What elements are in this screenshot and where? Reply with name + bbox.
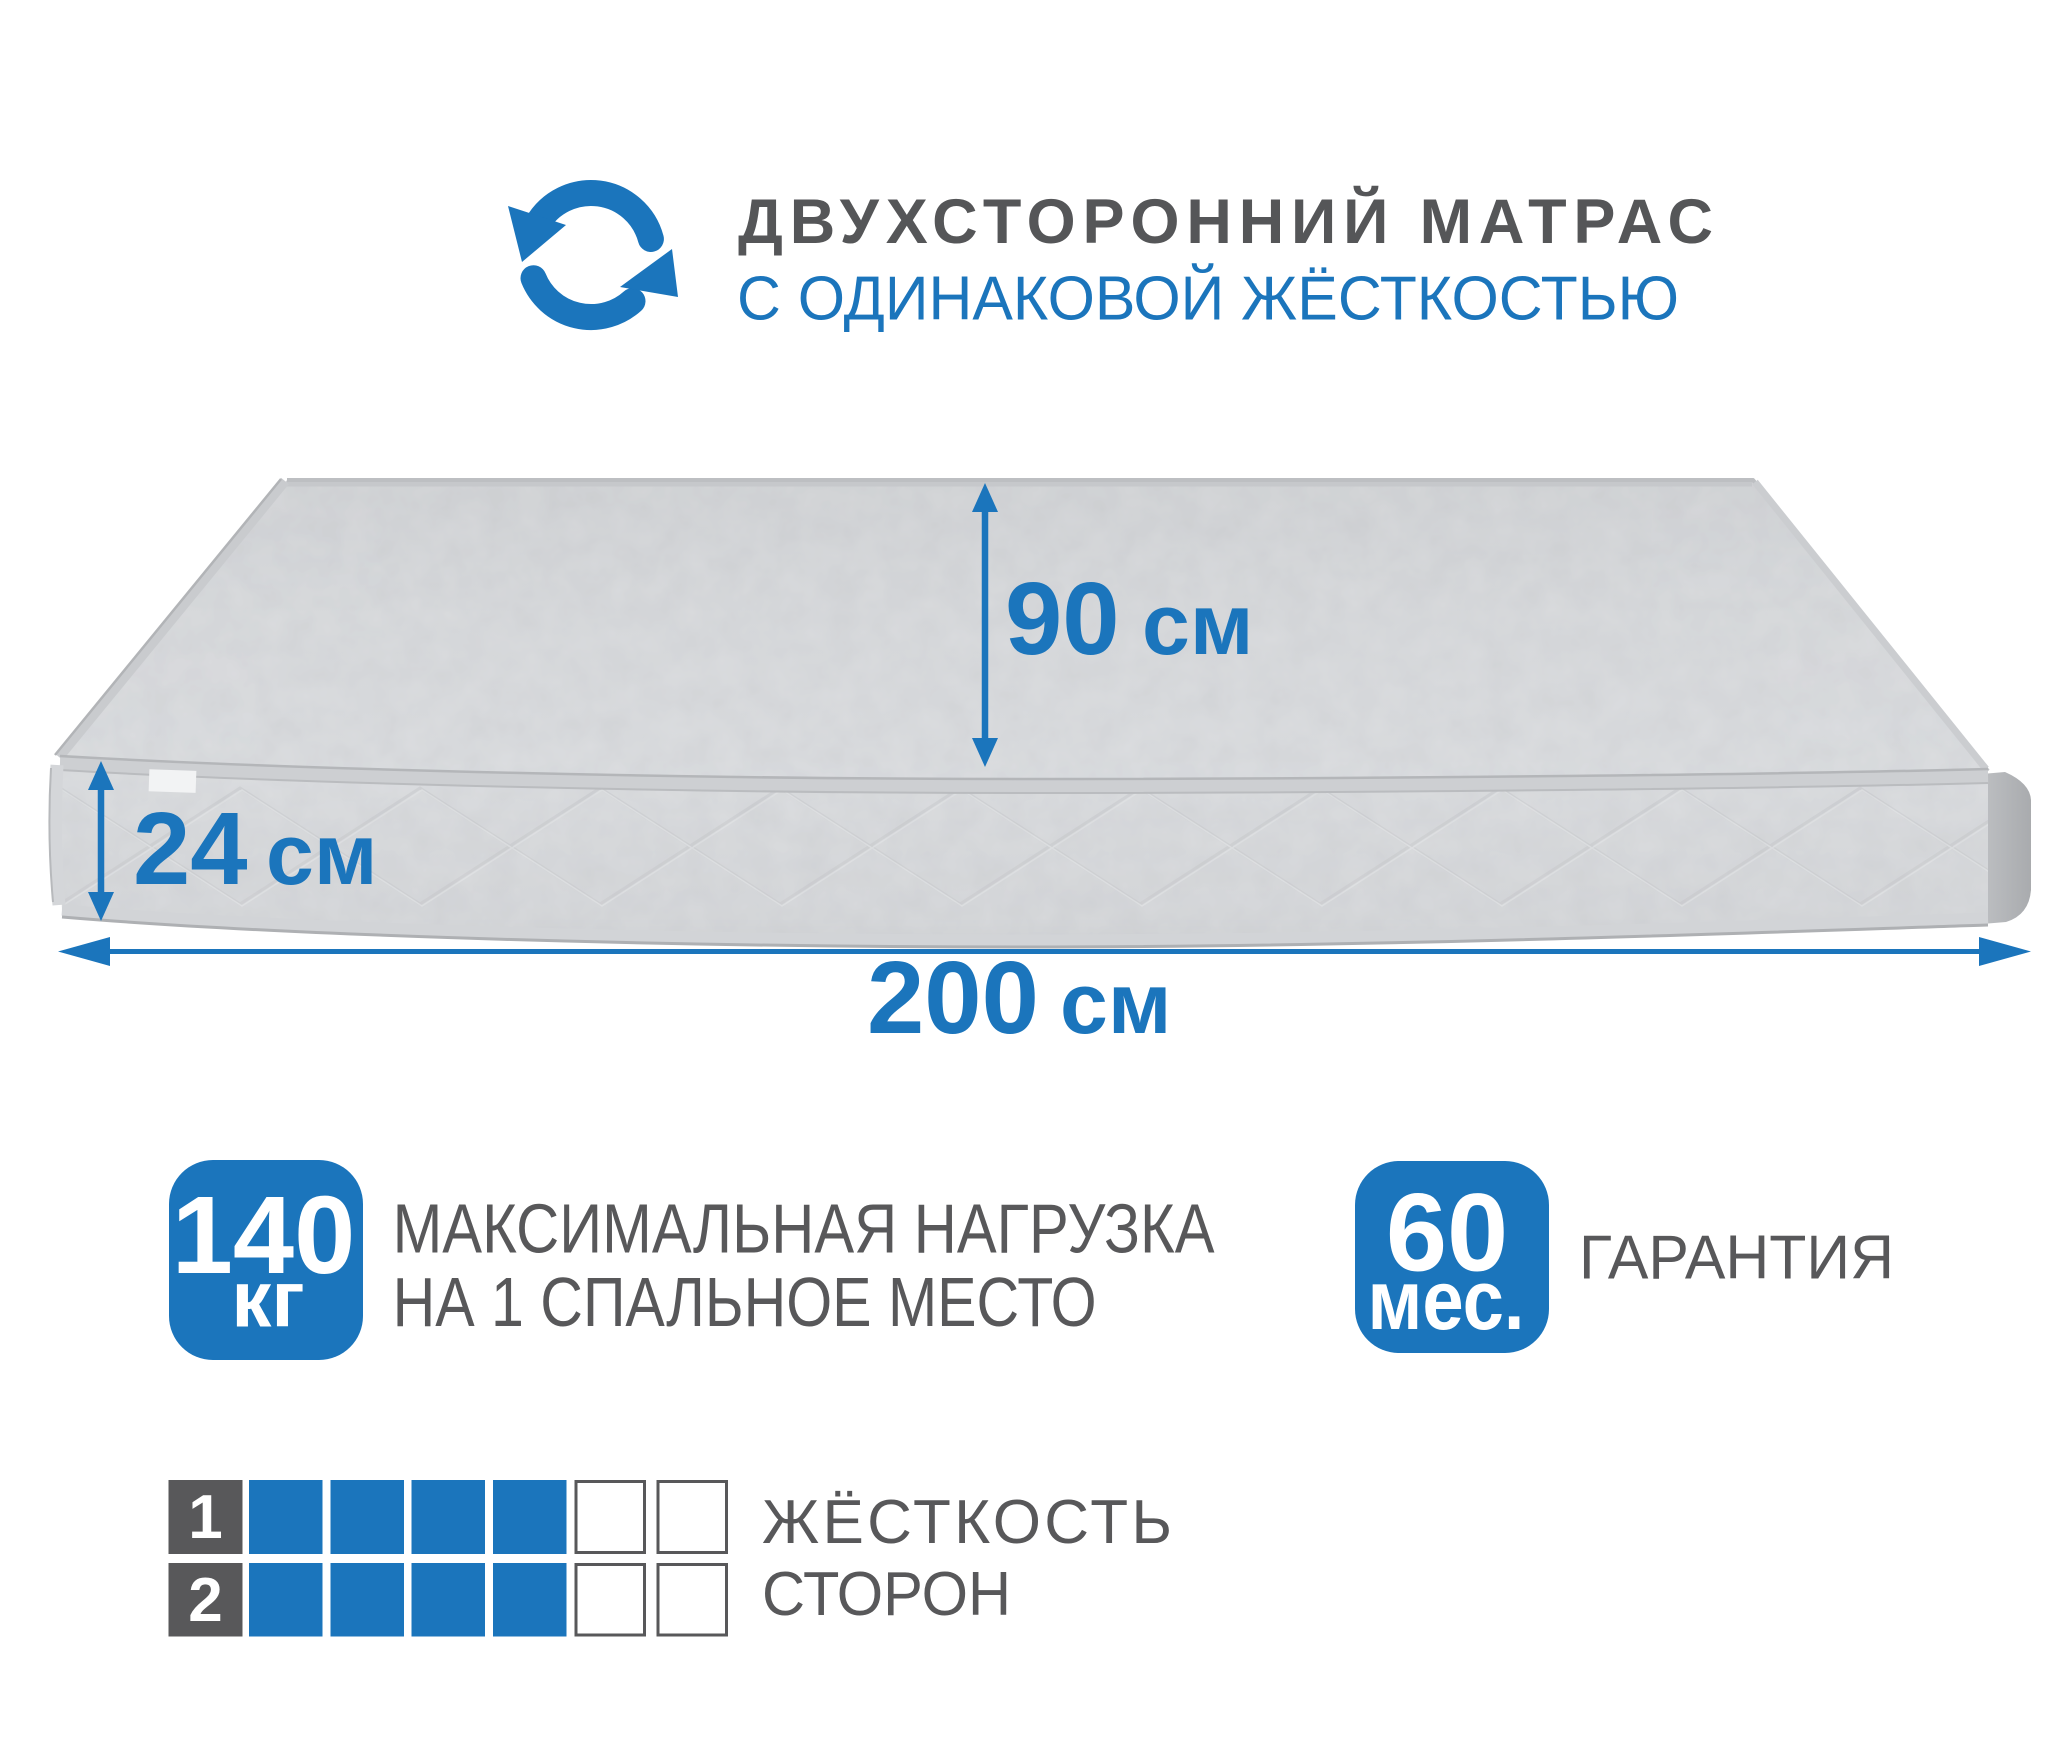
svg-text:кг: кг [231, 1254, 304, 1343]
svg-text:200: 200 [867, 940, 1039, 1055]
svg-text:см: см [1060, 956, 1171, 1052]
svg-text:см: см [1142, 577, 1253, 673]
svg-text:ГАРАНТИЯ: ГАРАНТИЯ [1579, 1224, 1894, 1293]
svg-text:1: 1 [188, 1483, 222, 1552]
svg-text:24: 24 [133, 791, 248, 906]
svg-text:90: 90 [1005, 561, 1120, 676]
svg-text:см: см [266, 807, 377, 903]
svg-text:С ОДИНАКОВОЙ ЖЁСТКОСТЬЮ: С ОДИНАКОВОЙ ЖЁСТКОСТЬЮ [737, 264, 1679, 334]
svg-text:мес.: мес. [1368, 1253, 1525, 1347]
svg-text:ЖЁСТКОСТЬ: ЖЁСТКОСТЬ [762, 1488, 1172, 1557]
svg-text:НА 1 СПАЛЬНОЕ МЕСТО: НА 1 СПАЛЬНОЕ МЕСТО [393, 1263, 1097, 1341]
svg-text:МАКСИМАЛЬНАЯ НАГРУЗКА: МАКСИМАЛЬНАЯ НАГРУЗКА [393, 1190, 1215, 1268]
svg-text:СТОРОН: СТОРОН [762, 1560, 1011, 1629]
svg-text:2: 2 [188, 1566, 222, 1635]
